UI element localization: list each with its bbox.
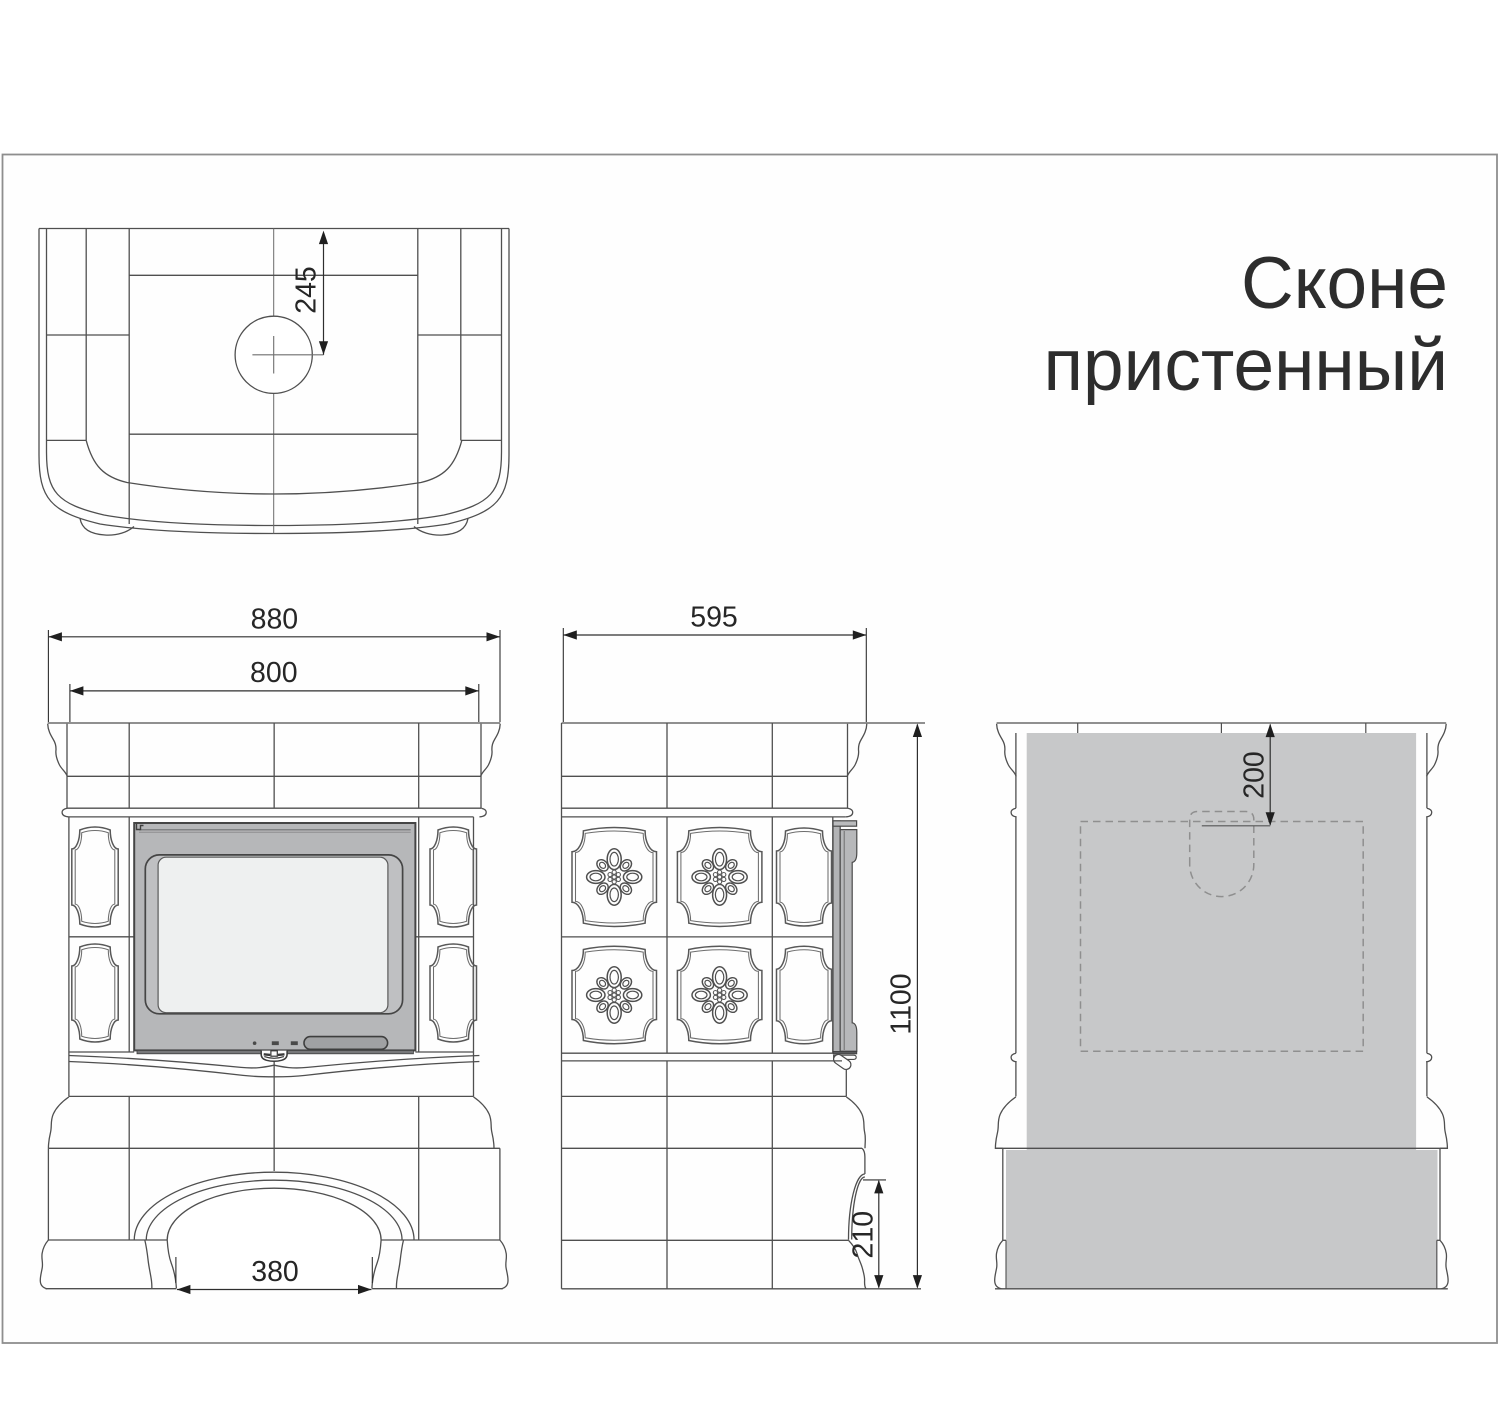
svg-text:880: 880 bbox=[251, 604, 299, 636]
svg-text:Сконе: Сконе bbox=[1241, 243, 1448, 324]
svg-text:1100: 1100 bbox=[886, 973, 918, 1034]
svg-text:595: 595 bbox=[690, 602, 738, 634]
svg-text:800: 800 bbox=[250, 657, 298, 689]
svg-text:380: 380 bbox=[251, 1256, 299, 1288]
svg-text:200: 200 bbox=[1239, 751, 1271, 799]
svg-text:245: 245 bbox=[291, 266, 323, 314]
svg-text:пристенный: пристенный bbox=[1044, 325, 1449, 406]
svg-text:210: 210 bbox=[847, 1211, 879, 1259]
